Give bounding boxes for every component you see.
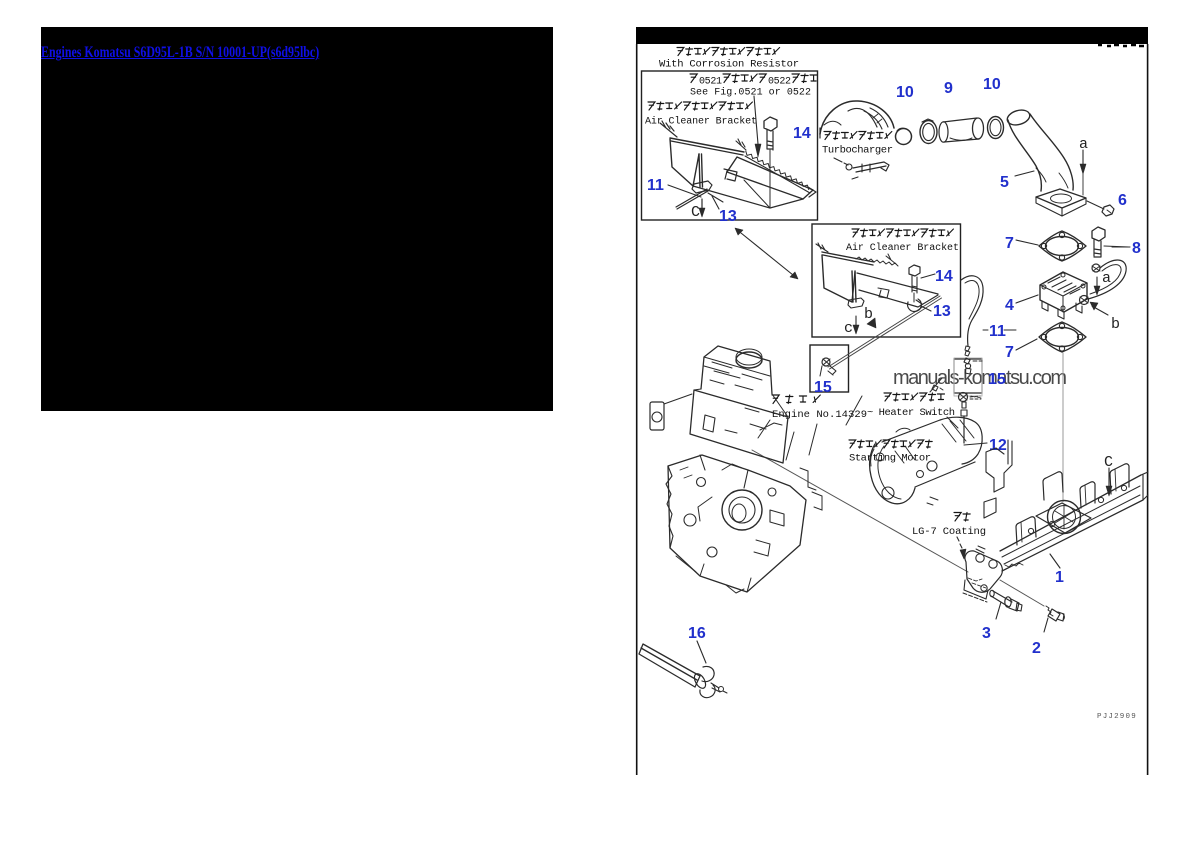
svg-text:3: 3 <box>982 625 991 642</box>
svg-text:7: 7 <box>1005 344 1014 361</box>
svg-text:Air Cleaner Bracket: Air Cleaner Bracket <box>846 242 959 254</box>
svg-text:16: 16 <box>688 625 706 642</box>
svg-text:b: b <box>1111 316 1120 333</box>
svg-text:LG-7 Coating: LG-7 Coating <box>912 526 986 538</box>
svg-text:7: 7 <box>1005 235 1014 252</box>
svg-text:12: 12 <box>989 437 1007 454</box>
svg-text:0521: 0521 <box>699 77 722 88</box>
svg-text:2: 2 <box>1032 640 1041 657</box>
svg-text:8: 8 <box>1132 240 1141 257</box>
svg-text:9: 9 <box>944 80 953 97</box>
svg-text:10: 10 <box>983 76 1001 93</box>
svg-text:15: 15 <box>814 379 832 396</box>
svg-text:10: 10 <box>896 84 914 101</box>
svg-text:Starting Motor: Starting Motor <box>849 453 931 465</box>
svg-text:11: 11 <box>647 177 664 194</box>
svg-text:14: 14 <box>793 125 811 142</box>
svg-text:0522: 0522 <box>768 77 791 88</box>
svg-text:~ Heater Switch: ~ Heater Switch <box>867 407 955 419</box>
svg-text:11: 11 <box>989 323 1006 340</box>
svg-text:6: 6 <box>1118 192 1127 209</box>
svg-text:C: C <box>691 204 700 221</box>
svg-text:4: 4 <box>1005 297 1014 314</box>
svg-text:13: 13 <box>933 303 951 320</box>
svg-text:1: 1 <box>1055 569 1064 586</box>
svg-text:15: 15 <box>988 371 1006 388</box>
svg-text:manuals-komatsu.com: manuals-komatsu.com <box>893 367 1067 389</box>
svg-text:5: 5 <box>1000 174 1009 191</box>
svg-text:Turbocharger: Turbocharger <box>822 145 893 157</box>
svg-text:c: c <box>844 320 853 337</box>
svg-text:See Fig.0521 or 0522: See Fig.0521 or 0522 <box>690 87 811 99</box>
svg-text:14: 14 <box>935 268 953 285</box>
svg-text:13: 13 <box>719 208 737 225</box>
svg-text:With Corrosion Resistor: With Corrosion Resistor <box>659 59 799 71</box>
svg-text:PJJ2909: PJJ2909 <box>1097 713 1137 721</box>
